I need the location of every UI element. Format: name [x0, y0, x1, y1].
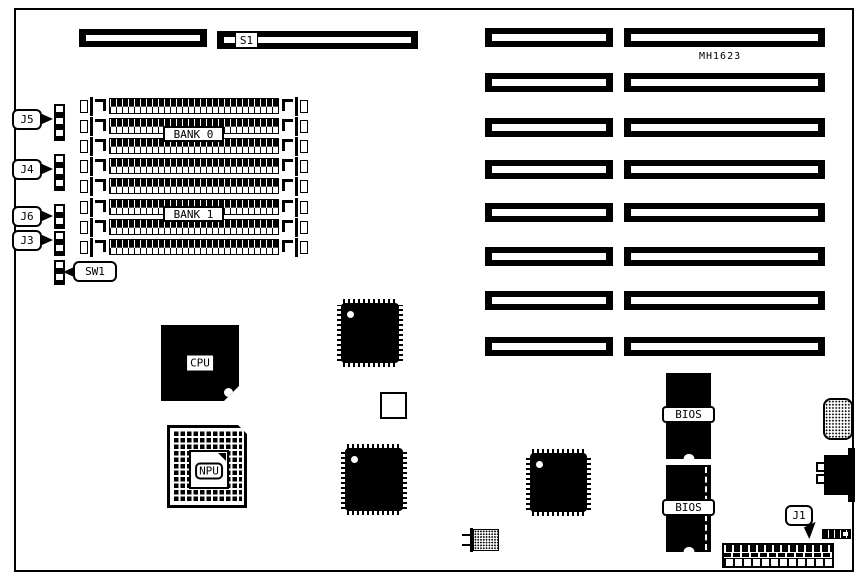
- motherboard-diagram: S1 BANK 0 BANK 1 J5 J4 J6 J3 SW1 MH1623 …: [0, 0, 862, 578]
- j6-pin-header: [54, 204, 65, 229]
- qfp-chip-1: [337, 299, 403, 367]
- callout-sw1: SW1: [73, 261, 117, 282]
- bank0-label: BANK 0: [163, 126, 224, 142]
- din-connector-tab-2: [816, 474, 826, 484]
- j4-pin-header: [54, 154, 65, 191]
- qfp1-pin1-dot: [347, 311, 354, 318]
- oscillator-component: [462, 528, 500, 552]
- power-connector-keybar: [724, 553, 832, 557]
- npu-socket: NPU: [167, 425, 247, 508]
- simm-socket-1: [80, 97, 308, 116]
- power-connector-pins: [724, 545, 832, 552]
- expansion-slot-long-3: [624, 118, 825, 137]
- din-connector: [816, 448, 855, 502]
- board-part-number: MH1623: [699, 51, 741, 62]
- expansion-slot-long-2: [624, 73, 825, 92]
- qfp-chip-3: [526, 449, 591, 516]
- expansion-slot-long-7: [624, 291, 825, 310]
- simm-socket-5: [80, 177, 308, 196]
- power-connector: [722, 543, 834, 568]
- bios-top-label: BIOS: [662, 406, 715, 423]
- keyboard-connector: [823, 398, 853, 440]
- expansion-slot-long-5: [624, 203, 825, 222]
- callout-pointer-j3: [42, 235, 53, 245]
- qfp2-pin1-dot: [351, 456, 358, 463]
- din-connector-body: [824, 455, 850, 495]
- bios-bottom-label: BIOS: [662, 499, 715, 516]
- expansion-slot-short-4: [485, 160, 613, 179]
- expansion-slot-long-8: [624, 337, 825, 356]
- npu-socket-window: NPU: [189, 450, 229, 489]
- cpu-label: CPU: [187, 356, 213, 371]
- top-edge-connector-left: [79, 29, 207, 47]
- callout-j4: J4: [12, 159, 42, 180]
- crystal-component: [380, 392, 407, 419]
- qfp3-pin1-dot: [536, 461, 543, 468]
- expansion-slot-short-3: [485, 118, 613, 137]
- callout-pointer-j5: [42, 114, 53, 124]
- simm-socket-4: [80, 157, 308, 176]
- j1-connector: [822, 529, 851, 539]
- cpu-chip: CPU: [161, 325, 239, 401]
- callout-pointer-j6: [42, 211, 53, 221]
- callout-j6: J6: [12, 206, 42, 227]
- qfp-chip-2: [341, 444, 407, 515]
- callout-pointer-j4: [42, 164, 53, 174]
- expansion-slot-long-4: [624, 160, 825, 179]
- expansion-slot-short-2: [485, 73, 613, 92]
- board-outline: [14, 8, 854, 572]
- j5-pin-header: [54, 104, 65, 141]
- din-connector-tab-1: [816, 462, 826, 472]
- npu-pin1-wedge: [218, 453, 226, 461]
- expansion-slot-short-8: [485, 337, 613, 356]
- callout-j3: J3: [12, 230, 42, 251]
- simm-socket-8: [80, 238, 308, 257]
- expansion-slot-short-1: [485, 28, 613, 47]
- power-connector-sockets: [724, 558, 832, 566]
- expansion-slot-long-1: [624, 28, 825, 47]
- callout-j1: J1: [785, 505, 813, 526]
- expansion-slot-short-6: [485, 247, 613, 266]
- bank1-label: BANK 1: [163, 206, 224, 222]
- s1-label: S1: [235, 32, 258, 48]
- j3-pin-header: [54, 231, 65, 256]
- expansion-slot-short-7: [485, 291, 613, 310]
- callout-j5: J5: [12, 109, 42, 130]
- npu-label: NPU: [195, 463, 223, 480]
- expansion-slot-short-5: [485, 203, 613, 222]
- expansion-slot-long-6: [624, 247, 825, 266]
